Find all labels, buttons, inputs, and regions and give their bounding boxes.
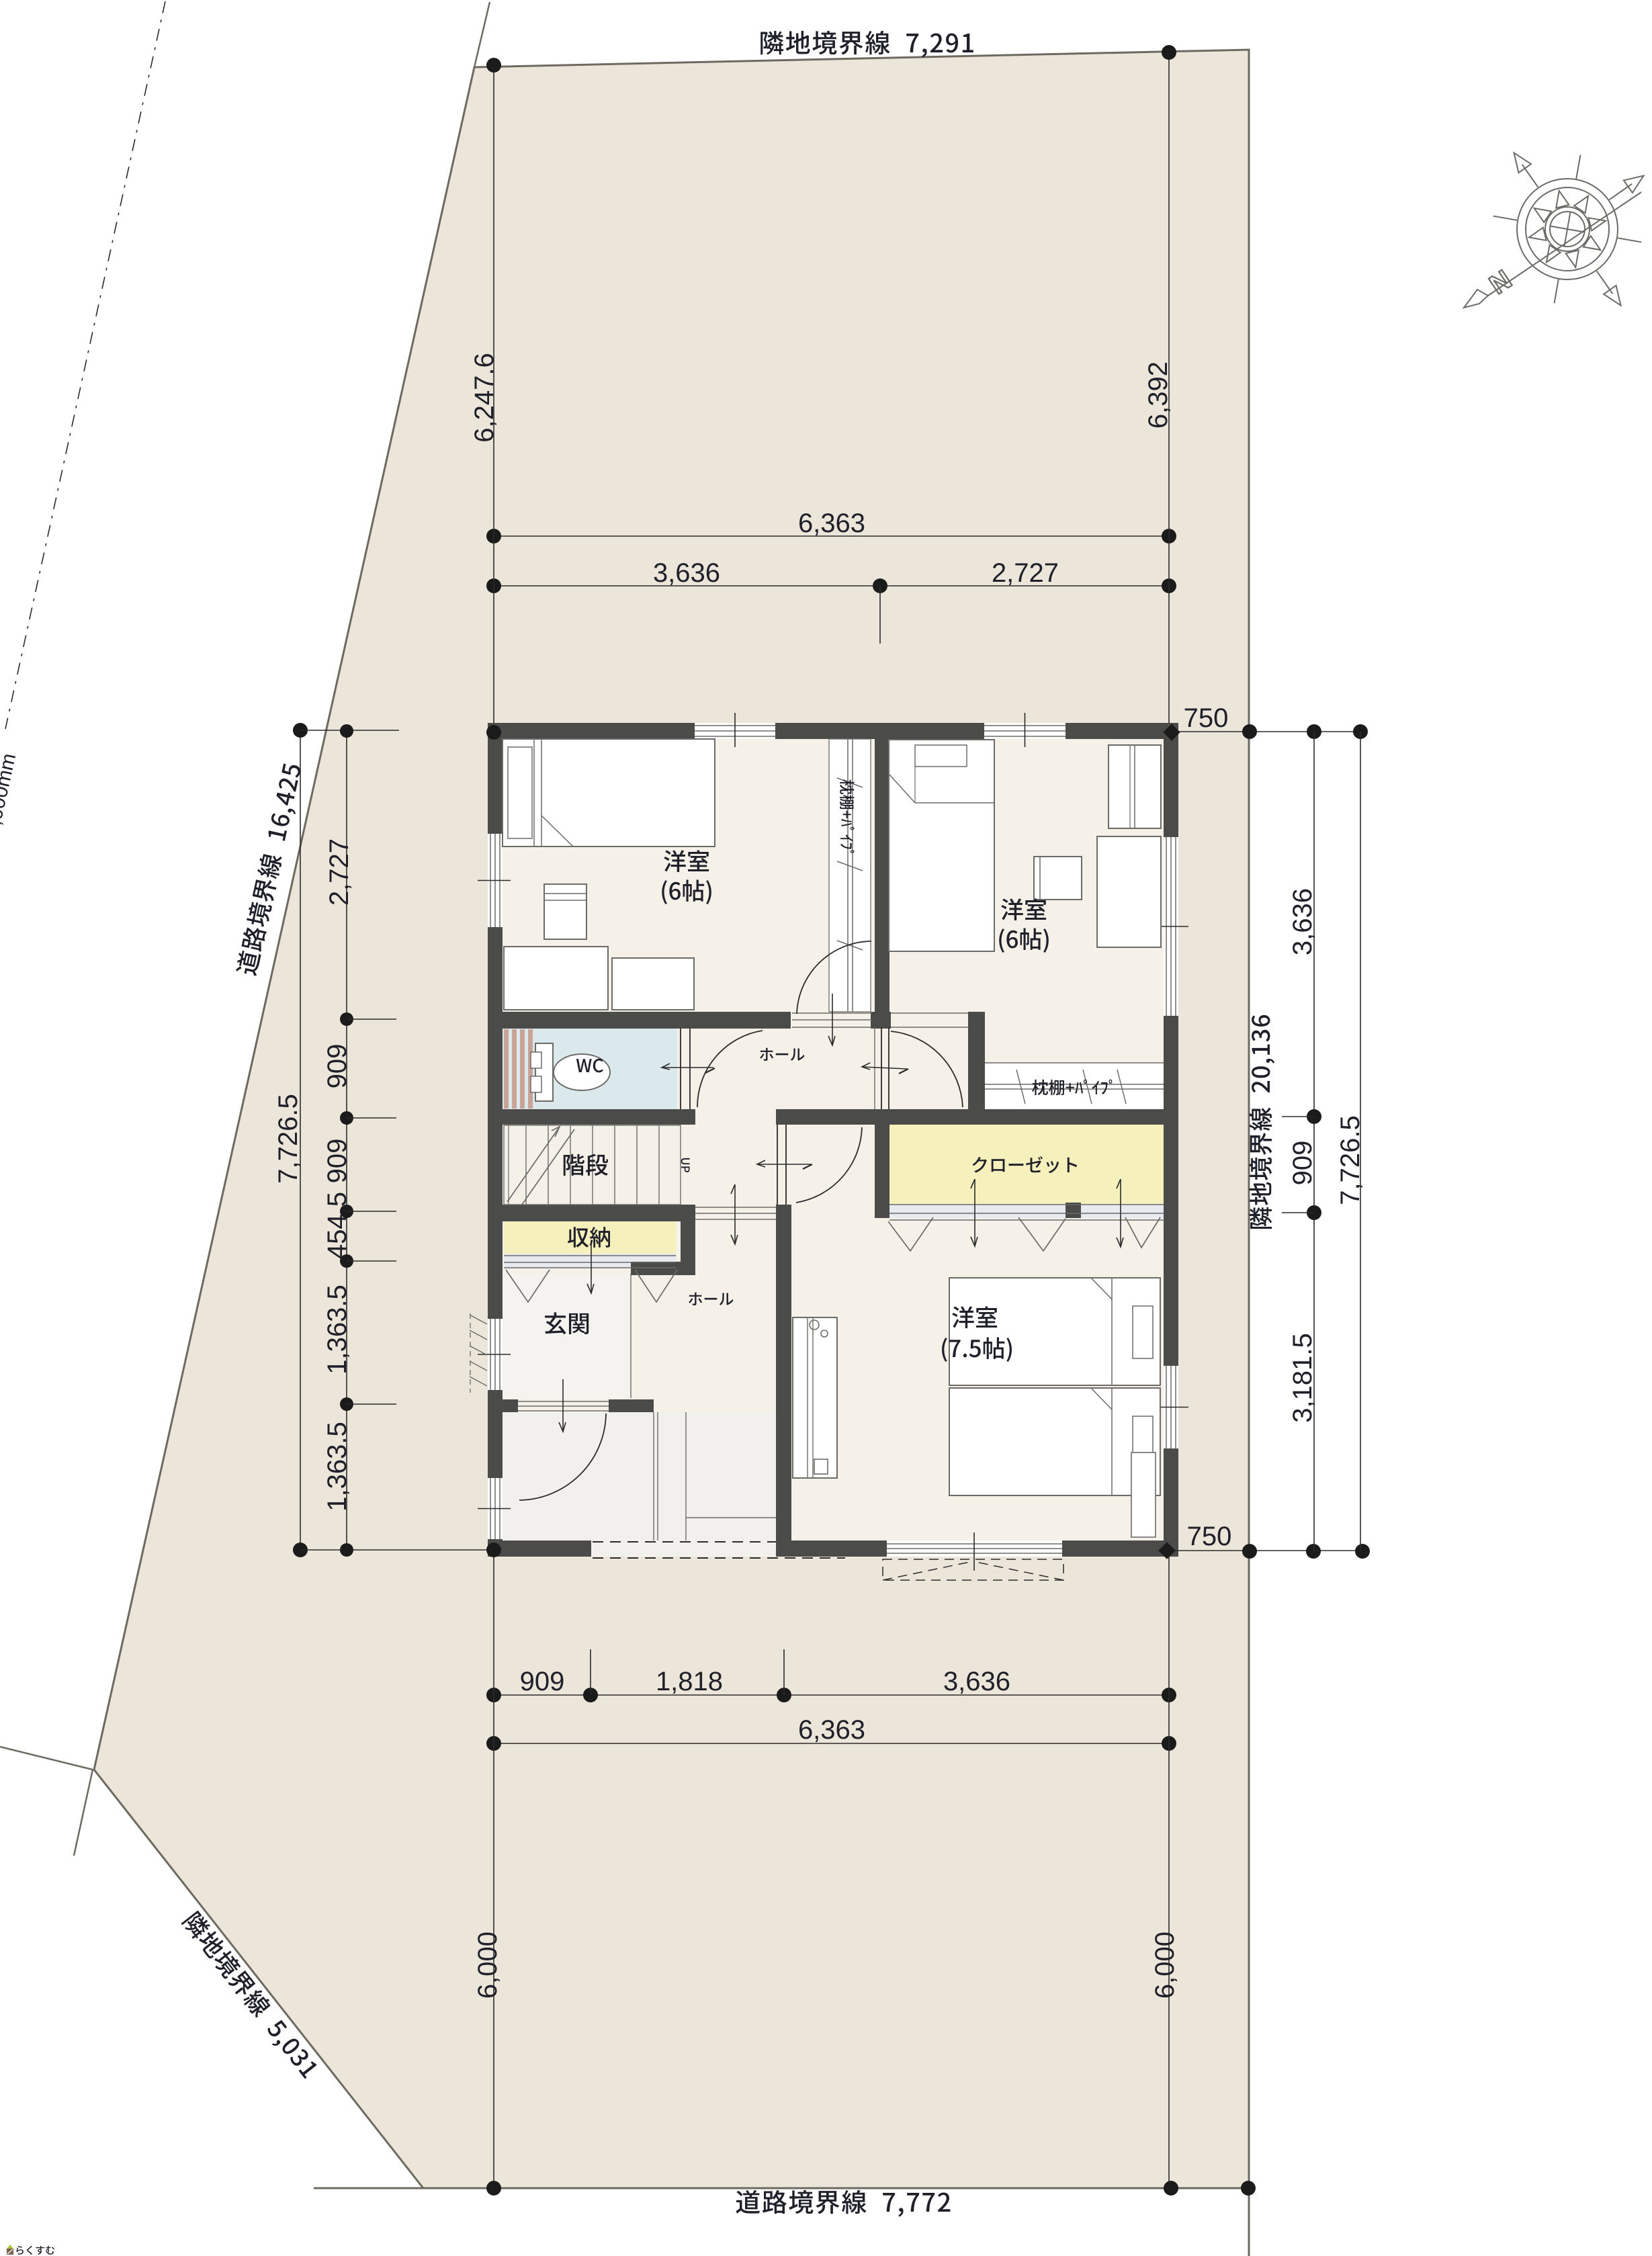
- svg-text:6,000: 6,000: [473, 1932, 503, 1999]
- svg-text:6,247.6: 6,247.6: [470, 353, 499, 442]
- svg-text:2,727: 2,727: [992, 558, 1059, 588]
- svg-text:7,726.5: 7,726.5: [1336, 1115, 1365, 1205]
- svg-text:7,726.5: 7,726.5: [273, 1094, 303, 1183]
- svg-text:6,363: 6,363: [798, 509, 865, 538]
- svg-text:6,000: 6,000: [1150, 1932, 1180, 1999]
- svg-text:909: 909: [1288, 1141, 1317, 1186]
- svg-text:2,727: 2,727: [324, 838, 354, 906]
- svg-text:6,392: 6,392: [1143, 361, 1173, 429]
- svg-text:3,636: 3,636: [943, 1667, 1010, 1696]
- svg-text:1,363.5: 1,363.5: [322, 1422, 352, 1511]
- svg-text:750: 750: [1184, 703, 1229, 733]
- svg-text:1,363.5: 1,363.5: [322, 1285, 352, 1374]
- svg-text:3,636: 3,636: [1288, 888, 1317, 955]
- svg-text:909: 909: [322, 1044, 352, 1089]
- svg-text:750: 750: [1187, 1522, 1232, 1551]
- svg-text:1,818: 1,818: [656, 1667, 723, 1696]
- svg-text:3,181.5: 3,181.5: [1288, 1333, 1317, 1422]
- svg-text:454.5: 454.5: [322, 1192, 352, 1259]
- svg-text:3,636: 3,636: [653, 558, 720, 588]
- svg-text:909: 909: [322, 1139, 352, 1184]
- svg-text:909: 909: [520, 1667, 565, 1696]
- svg-text:5,000mm: 5,000mm: [0, 751, 20, 838]
- svg-text:6,363: 6,363: [798, 1715, 865, 1745]
